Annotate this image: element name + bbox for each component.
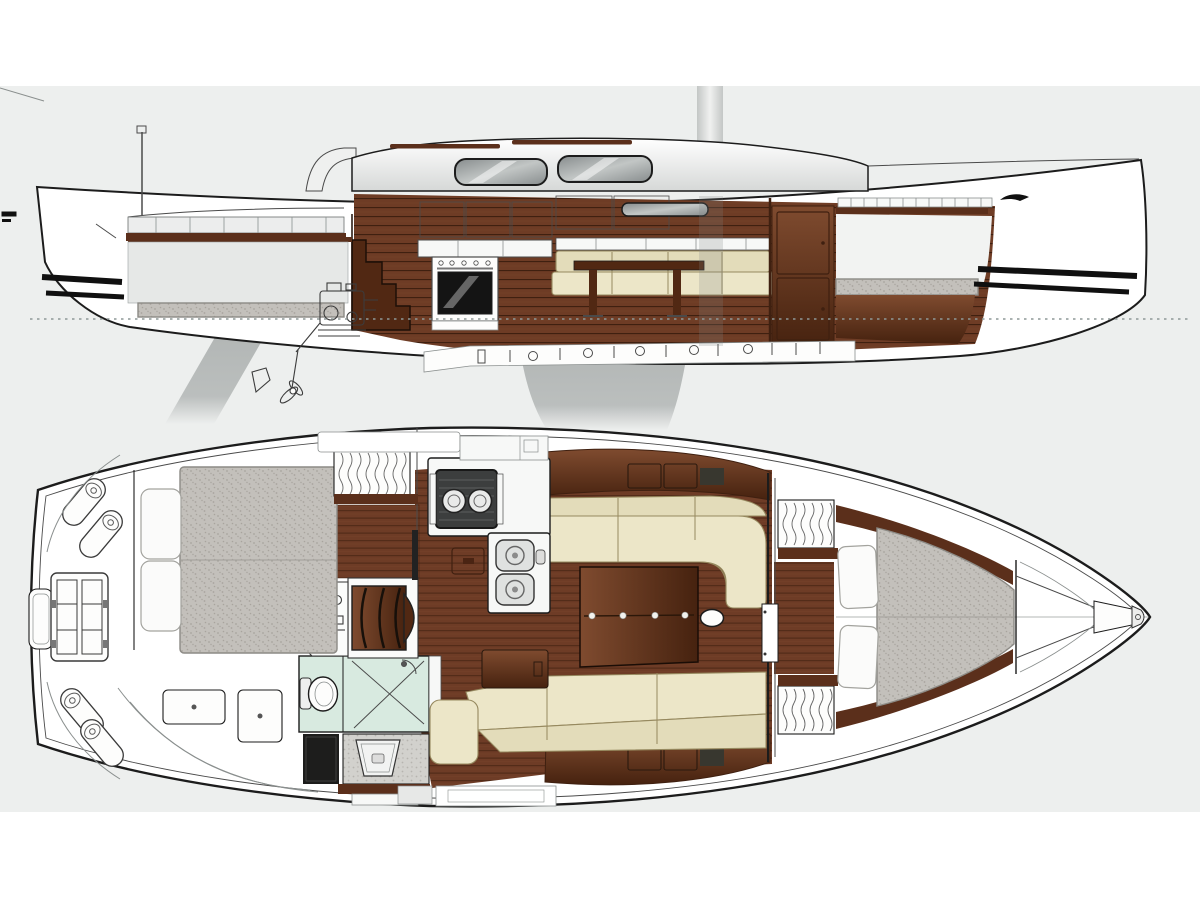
mast	[697, 86, 723, 150]
hanging-locker-aft	[334, 450, 418, 504]
faucet	[536, 550, 545, 564]
shelf-band	[556, 238, 770, 250]
mast-post	[701, 610, 724, 627]
slotted-toerail	[838, 198, 992, 207]
aft-cabin-floor	[337, 505, 419, 578]
head-locker	[303, 734, 339, 784]
companionway-steps-plan	[352, 586, 414, 650]
door-track	[412, 530, 418, 580]
salon-table-plan	[580, 567, 698, 667]
aft-berth-side	[128, 237, 352, 317]
cockpit-sole	[126, 233, 346, 241]
vanity	[343, 734, 429, 784]
v-berth-pillow	[837, 625, 878, 689]
yacht-layout-diagram	[0, 0, 1200, 900]
mast-inside-cabin	[699, 196, 723, 346]
gimbal-stove	[430, 470, 503, 528]
chart-locker	[482, 650, 548, 688]
transom-locker	[29, 589, 53, 649]
aft-berth-pillow	[141, 561, 181, 631]
cockpit-table	[51, 573, 108, 661]
forward-corridor-sole	[774, 562, 834, 674]
salon-settee	[552, 251, 774, 295]
toilet	[300, 677, 338, 711]
v-berth-pillow	[837, 545, 878, 609]
chart-seat	[430, 700, 478, 764]
head-compartment	[299, 656, 441, 805]
aft-berth-pillow	[141, 489, 181, 559]
hull-window	[622, 203, 708, 216]
forward-lockers	[772, 206, 834, 348]
deck-panel-top	[318, 432, 460, 452]
galley-counter	[418, 240, 552, 257]
sole-hatch-latch	[463, 558, 474, 564]
diagram-canvas	[0, 0, 1200, 900]
forward-berth-side	[836, 206, 992, 344]
